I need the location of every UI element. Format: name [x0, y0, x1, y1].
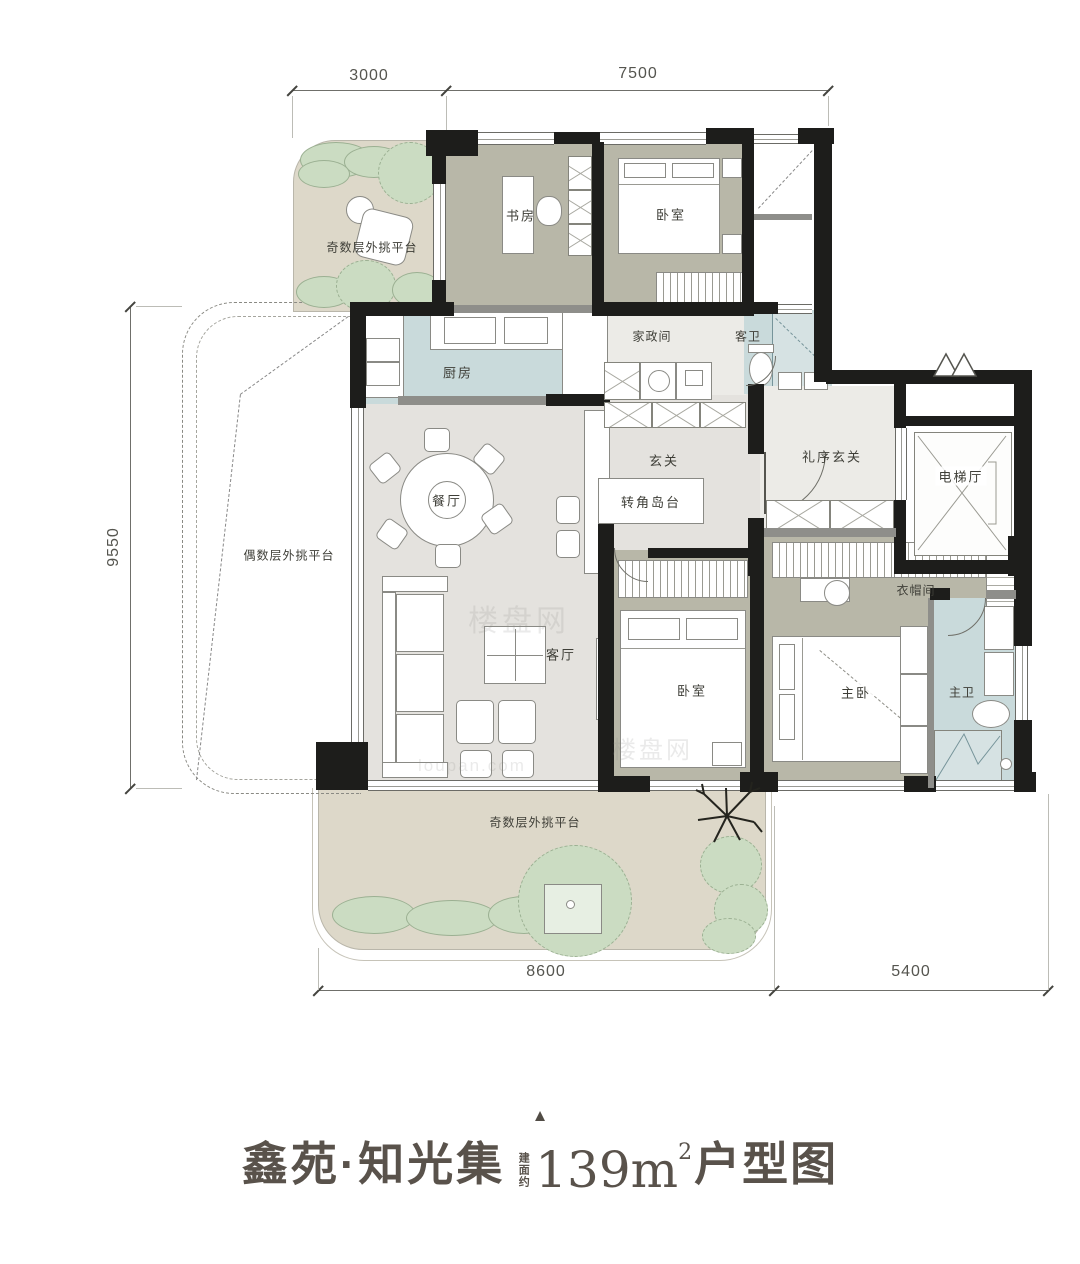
- sofa-cushion: [396, 594, 444, 652]
- toilet: [972, 700, 1010, 728]
- wall: [748, 384, 764, 454]
- armchair: [456, 700, 494, 744]
- bed-bench: [712, 742, 742, 766]
- wardrobe: [656, 272, 746, 306]
- room-label-platform-top: 奇数层外挑平台: [326, 239, 417, 256]
- bath-vanity: [778, 372, 802, 390]
- blanket-line: [619, 184, 719, 185]
- stool: [824, 580, 850, 606]
- dim-ext: [828, 96, 829, 126]
- stool: [556, 530, 580, 558]
- title-area-prefix: 建面约: [515, 1152, 531, 1188]
- nightstand: [722, 234, 742, 254]
- wall-column: [316, 742, 368, 790]
- dim-line-bottom: [318, 990, 1048, 991]
- hedge: [298, 160, 350, 188]
- wall: [1008, 536, 1032, 576]
- wall-light: [764, 528, 896, 537]
- dryer: [604, 362, 640, 400]
- room-label-foyer: 玄关: [649, 451, 679, 470]
- dim-ext: [446, 96, 447, 130]
- drain: [1000, 758, 1012, 770]
- corner-sink: [366, 362, 400, 386]
- ottoman: [502, 750, 534, 778]
- kitchen-half-wall: [398, 396, 548, 405]
- pillow: [779, 644, 795, 690]
- ceremony-cabinet: [830, 500, 894, 530]
- room-label-guest-bath: 客卫: [735, 328, 761, 345]
- wall: [1014, 574, 1032, 646]
- title-area: 139m2: [535, 1143, 692, 1195]
- blanket-line: [621, 648, 745, 649]
- wall: [814, 128, 832, 382]
- dim-left: 9550: [105, 527, 123, 567]
- fridge: [562, 312, 608, 398]
- vent-triangles-icon: [918, 350, 982, 378]
- kitchen-sink: [504, 317, 548, 344]
- hedge: [332, 896, 416, 934]
- dim-line-left: [130, 306, 131, 788]
- room-label-study: 书房: [506, 206, 536, 225]
- stove: [444, 317, 496, 344]
- island-label-box: 转角岛台: [598, 478, 704, 524]
- vanity: [984, 652, 1014, 696]
- vanity: [984, 606, 1014, 650]
- flue-box: [568, 156, 592, 190]
- corner-sink: [366, 338, 400, 362]
- shoe-cabinet: [652, 402, 700, 428]
- window: [778, 304, 812, 314]
- pillow: [672, 163, 714, 178]
- guest-bath-door-arc: [746, 356, 776, 386]
- elevator-divider-wall: [906, 416, 1016, 426]
- elevator-x-icon: [914, 432, 1010, 554]
- sofa-armrest: [382, 576, 448, 592]
- ceremony-cabinet: [766, 500, 830, 530]
- wall: [598, 518, 614, 788]
- wall: [742, 142, 754, 308]
- wall: [432, 150, 446, 184]
- wall: [750, 532, 764, 788]
- planter-box: [544, 884, 602, 934]
- window: [778, 780, 904, 791]
- dim-line-top: [292, 90, 830, 91]
- dim-ext: [136, 788, 182, 789]
- title-project: 鑫苑·知光集: [242, 1128, 505, 1194]
- pillow: [624, 163, 666, 178]
- room-label-living: 客厅: [546, 645, 576, 664]
- planter-dot: [566, 900, 575, 909]
- duct-dash: [758, 150, 813, 208]
- room-label-ceremony-foyer: 礼序玄关: [802, 447, 862, 466]
- flue-box: [568, 224, 592, 256]
- floor-plan: 转角岛台: [0, 0, 1080, 1264]
- wall-light: [928, 598, 934, 788]
- bedside-cabinet: [900, 626, 928, 674]
- title-pointer-icon: ▲: [0, 1106, 1080, 1126]
- sofa-armrest: [382, 762, 448, 778]
- window: [478, 132, 554, 145]
- stool: [556, 496, 580, 524]
- bedside-cabinet: [900, 674, 928, 726]
- window: [1015, 646, 1028, 720]
- room-label-bedroom-top: 卧室: [656, 205, 686, 224]
- sofa-back: [382, 592, 396, 778]
- duct-divider: [754, 214, 812, 220]
- shower-lines-icon: [934, 730, 1002, 782]
- sofa-cushion: [396, 654, 444, 712]
- dim-top-left: 3000: [349, 67, 389, 85]
- pillow: [779, 694, 795, 740]
- dim-ext: [774, 806, 775, 990]
- window: [895, 428, 907, 500]
- coffee-table: [484, 626, 546, 684]
- room-label-dining: 餐厅: [432, 491, 462, 510]
- ottoman: [460, 750, 492, 778]
- nightstand: [722, 158, 742, 178]
- pillow: [628, 618, 680, 640]
- title-area-number: 139m: [535, 1141, 678, 1199]
- dining-chair: [435, 544, 461, 568]
- room-label-platform-bottom: 奇数层外挑平台: [489, 814, 580, 831]
- kitchen-wall-end: [546, 394, 610, 406]
- blanket-line: [802, 638, 803, 760]
- room-label-master-bedroom: 主卧: [838, 683, 874, 702]
- laundry-basin: [685, 370, 703, 386]
- shoe-cabinet: [700, 402, 746, 428]
- bedroom-door-arc: [614, 548, 648, 582]
- title-area-sup: 2: [678, 1140, 692, 1165]
- flue-box: [568, 190, 592, 224]
- wall: [1014, 720, 1032, 778]
- island-label: 转角岛台: [621, 492, 681, 511]
- dim-bottom-left: 8600: [526, 963, 566, 981]
- room-label-kitchen: 厨房: [443, 363, 473, 382]
- dim-top-right: 7500: [618, 65, 658, 83]
- room-label-platform-left: 偶数层外挑平台: [243, 547, 334, 564]
- title-block: 鑫苑·知光集 建面约 139m2 户型图: [0, 1128, 1080, 1194]
- wall: [592, 142, 604, 308]
- dim-ext: [318, 948, 319, 990]
- wall: [592, 302, 754, 316]
- wall: [350, 302, 366, 408]
- window: [936, 780, 1014, 791]
- wall: [894, 370, 906, 428]
- washer-drum: [648, 370, 670, 392]
- wall-light: [986, 590, 1016, 599]
- room-label-master-bath: 主卫: [949, 684, 975, 701]
- room-label-housekeeping: 家政间: [632, 328, 671, 345]
- wall: [648, 548, 752, 558]
- window: [433, 184, 446, 280]
- window: [754, 134, 798, 144]
- wall-light: [454, 305, 592, 313]
- window: [600, 132, 706, 145]
- wall: [754, 302, 778, 314]
- pillow: [686, 618, 738, 640]
- room-label-bedroom-mid: 卧室: [674, 681, 710, 700]
- shoe-cabinet: [604, 402, 652, 428]
- wardrobe: [772, 542, 896, 578]
- dim-ext: [136, 306, 182, 307]
- armchair: [498, 700, 536, 744]
- tree-branches-icon: [690, 780, 764, 852]
- dim-bottom-right: 5400: [891, 963, 931, 981]
- hedge: [406, 900, 498, 936]
- bedside-cabinet: [900, 726, 928, 774]
- dim-ext: [1048, 794, 1049, 990]
- dining-chair: [424, 428, 450, 452]
- room-label-elevator-hall: 电梯厅: [935, 467, 986, 486]
- title-suffix: 户型图: [694, 1128, 838, 1194]
- desk-chair: [536, 196, 562, 226]
- bath-door-arc: [948, 598, 986, 636]
- window: [351, 408, 364, 742]
- window: [368, 780, 598, 791]
- dim-ext: [292, 96, 293, 138]
- room-label-cloakroom: 衣帽间: [896, 582, 935, 599]
- tree: [702, 918, 756, 954]
